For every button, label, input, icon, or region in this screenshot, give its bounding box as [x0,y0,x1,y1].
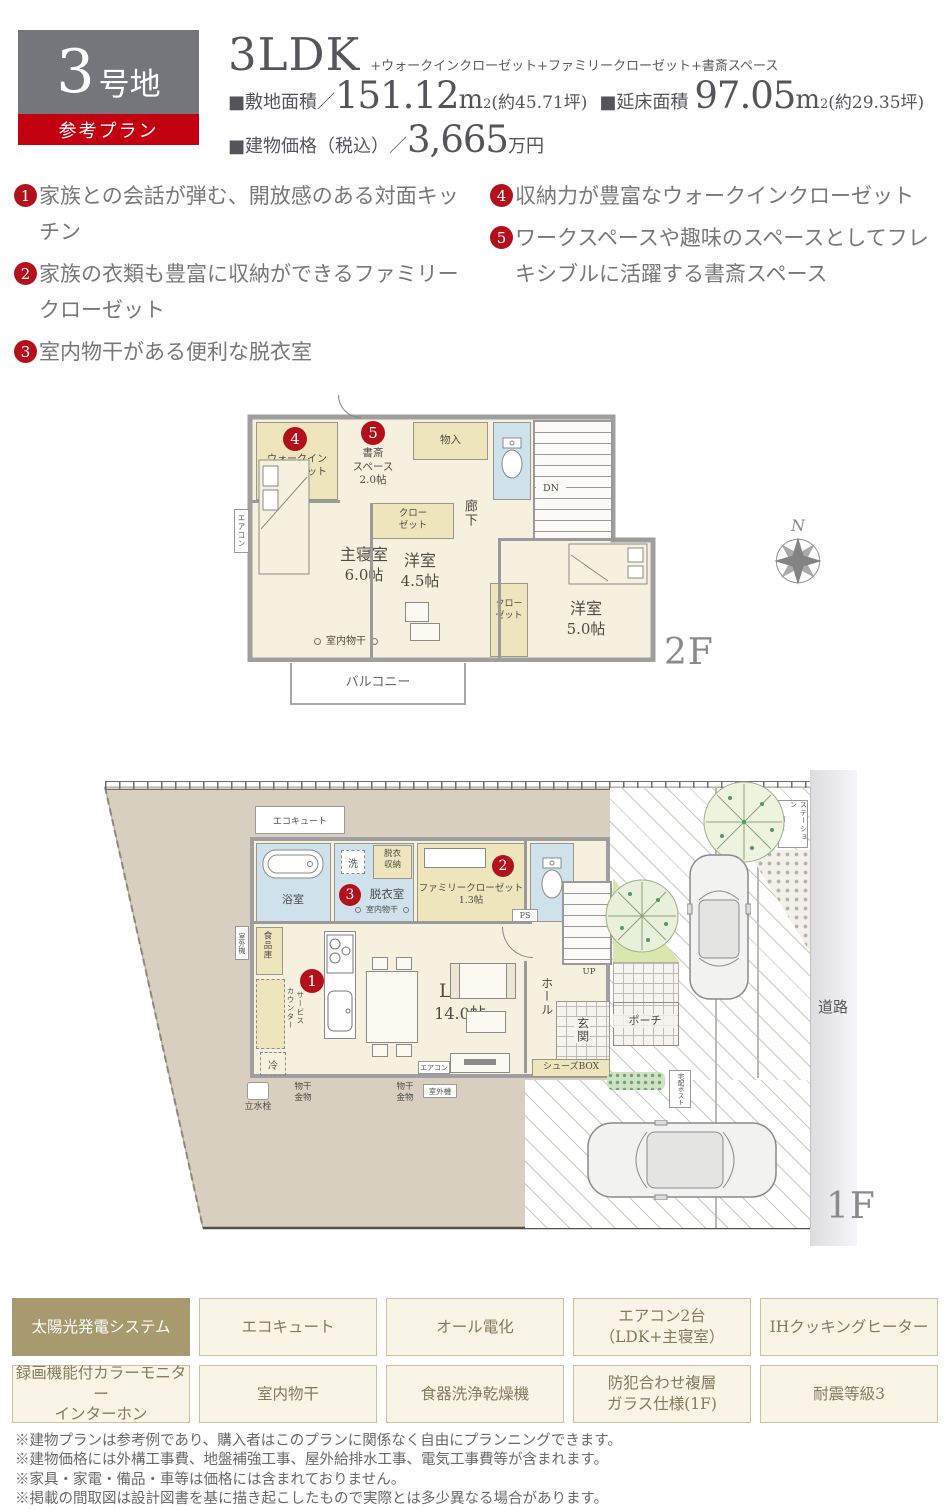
hang1-line2: 金物 [287,1093,319,1104]
family-closet-line1: ファミリークローゼット [418,883,524,895]
plan-badge-5: 5 [361,421,385,445]
entrance-label: 玄関 [574,1017,590,1043]
badge-indoor-drying: 室内物干 [199,1365,377,1423]
note-line-4: ※掲載の間取図は設計図書を基に描き起こしたもので実際とは多少異なる場合があります… [15,1490,935,1509]
feature-item-1: 1 家族との会話が弾む、開放感のある対面キッチン [14,178,476,250]
corridor-label: 廊下 [460,499,477,527]
badge-security-glass-line2: ガラス仕様(1F) [607,1394,717,1415]
closet-middle-label: クロー ゼット [372,508,454,533]
reference-plan-ribbon: 参考プラン [18,114,199,145]
house-1f: 浴室 洗 脱衣 収納 3 脱衣室 室内物干 2 ファミリークローゼット 1.3帖… [250,837,610,1078]
bed-icon-western50 [568,543,648,585]
hedge [607,1072,665,1090]
disclaimer-notes: ※建物プランは参考例であり、購入者はこのプランに関係なく自由にプランニングできま… [15,1432,935,1509]
floor-area-unit: m [795,85,820,115]
badge-solar-line1: 太陽光発電システム [31,1317,170,1338]
toilet-icon [499,437,525,481]
tap-text: 立水栓 [244,1102,271,1112]
plan-badge-3-number: 3 [346,887,355,903]
note-line-3: ※家具・家電・備品・車等は価格には含まれておりません。 [15,1471,935,1490]
stairs-up-label: UP [574,967,604,978]
ecocute-text: エコキュート [273,814,327,827]
closet-right-line2: ゼット [490,611,528,623]
porch-text: ポーチ [629,1014,662,1027]
hang1-line1: 物干 [287,1082,319,1093]
floor-area-unit-sup: 2 [820,97,828,112]
lot-number-suffix: 号地 [99,59,161,104]
feature-text-4: 収納力が豊富なウォークインクローゼット [515,178,914,214]
hall-text: ホール [540,977,554,1016]
plan-badge-2: 2 [492,855,514,877]
land-area-unit-sup: 2 [483,97,491,112]
sink-icon [326,989,354,1033]
badge-solar: 太陽光発電システム [12,1298,190,1356]
western45-name: 洋室 [378,551,462,572]
hang2-line2: 金物 [389,1093,421,1104]
indoor-drying-1f: 室内物干 [346,905,418,915]
feature-text-1: 家族との会話が弾む、開放感のある対面キッチン [39,178,476,250]
western-room-50-label: 洋室 5.0帖 [538,599,634,639]
study-line1: 書斎 [342,447,404,461]
car-icon-bottom [585,1120,779,1200]
plan-badge-3: 3 [339,884,361,906]
tv-icon [464,1059,496,1065]
floor-label-1f: 1F [826,1186,876,1227]
door-arc [502,927,533,958]
chair-icon [396,957,412,970]
lot-number-box: 3 号地 [18,30,199,114]
undress-room-text: 脱衣室 [370,887,405,901]
feature-number-5: 5 [490,226,513,249]
ecocute-box: エコキュート [255,806,345,834]
stove-icon [326,934,354,974]
floor-area-label: ■延床面積 [599,88,688,114]
undress-storage-label: 脱衣 収納 [373,849,412,871]
fridge-text: 冷 [268,1057,278,1072]
chair-icon [396,1044,412,1057]
badge-interphone-line2: インターホン [54,1404,147,1425]
hang-hardware-2: 物干 金物 [389,1082,421,1104]
floor-1f-text: 1F [826,1186,876,1227]
family-closet-label: ファミリークローゼット 1.3帖 [418,883,524,908]
shoes-box-label: シューズBOX [532,1062,610,1074]
corridor-text: 廊下 [462,499,477,527]
aircon-1f-box: エアコン [418,1061,450,1074]
compass-north-label: N [770,516,826,535]
note-line-1: ※建物プランは参考例であり、購入者はこのプランに関係なく自由にプランニングできま… [15,1432,935,1451]
garbage-line2: ステーション [789,801,809,847]
indoor-drying-1f-text: 室内物干 [366,905,398,915]
floor-label-2f: 2F [664,632,714,673]
sofa-arm [450,963,460,999]
badge-all-electric-line1: オール電化 [436,1317,514,1338]
bathtub-icon [262,849,324,879]
closet-counter [424,848,486,868]
compass-rose-icon [772,535,824,587]
western45-size: 4.5帖 [378,572,462,592]
wall-line [254,921,532,924]
feature-number-4: 4 [490,184,513,207]
feature-number-1: 1 [14,184,37,207]
badge-aircon-line2: （LDK+主寝室） [600,1327,725,1348]
wall-line [498,540,501,658]
study-size: 2.0帖 [342,474,404,488]
reference-plan-label: 参考プラン [59,117,159,143]
badge-aircon-line1: エアコン2台 [618,1306,705,1327]
chair-icon [410,623,440,641]
hang-hardware-1: 物干 金物 [287,1082,319,1104]
delivery-post-text: 宅配ポスト [675,1073,685,1106]
indoor-drying-2f: 室内物干 [278,635,414,648]
badge-interphone-line1: 録画機能付カラーモニター [13,1363,189,1405]
plan-badge-4-number: 4 [290,430,300,448]
stairs-down-label: DN [536,483,566,495]
washer-box: 洗 [341,850,365,874]
hall-label: ホール [538,977,554,1016]
bed-icon-master [258,459,310,575]
badge-security-glass-line1: 防犯合わせ複層 [608,1373,717,1394]
badge-ecocute: エコキュート [199,1298,377,1356]
undress-storage-line2: 収納 [373,860,412,871]
tap-label: 立水栓 [235,1102,281,1114]
dn-text: DN [543,483,559,494]
feature-item-2: 2 家族の衣類も豊富に収納ができるファミリークローゼット [14,256,476,328]
price-value: 3,665 [407,118,508,161]
badge-ih-heater-line1: IHクッキングヒーター [770,1317,929,1338]
badge-seismic: 耐震等級3 [760,1365,938,1423]
feature-item-4: 4 収納力が豊富なウォークインクローゼット [490,178,942,214]
wall-line [370,503,373,658]
pantry-counter [256,979,285,1049]
pantry-label: 食品庫 [261,931,272,960]
car-icon-top [687,852,751,1002]
ps-box: PS [512,909,538,922]
ps-text: PS [520,911,531,920]
badge-security-glass: 防犯合わせ複層 ガラス仕様(1F) [573,1365,751,1423]
bathroom-text: 浴室 [282,893,304,906]
equipment-badges: 太陽光発電システム エコキュート オール電化 エアコン2台 （LDK+主寝室） … [12,1298,938,1423]
drying-hook-icon [355,907,361,913]
badge-indoor-drying-line1: 室内物干 [257,1384,319,1405]
land-area-value: 151.12 [335,74,458,117]
aircon-1f-text: エアコン [420,1063,448,1073]
undress-storage-line1: 脱衣 [373,849,412,860]
storage-label: 物入 [413,434,488,448]
badge-all-electric: オール電化 [386,1298,564,1356]
study-line2: スペース [342,461,404,475]
compass: N [770,516,826,596]
closet-middle-line1: クロー [372,508,454,520]
badge-dishwasher-line1: 食器洗浄乾燥機 [421,1384,530,1405]
outdoor-unit-bottom-text: 室外機 [429,1086,452,1097]
chair-icon [372,957,388,970]
plan-badge-4: 4 [283,427,307,451]
pantry-text: 食品庫 [262,931,272,960]
lot-number: 3 [56,42,94,102]
plan-badge-2-number: 2 [499,858,508,874]
western-room-45-label: 洋室 4.5帖 [378,551,462,591]
coffee-table-icon [466,1011,506,1033]
land-area-label: ■敷地面積／ [228,88,335,114]
feature-item-5: 5 ワークスペースや趣味のスペースとしてフレキシブルに活躍する書斎スペース [490,220,942,292]
feature-item-3: 3 室内物干がある便利な脱衣室 [14,334,476,370]
washer-text: 洗 [348,855,358,870]
features-left-column: 1 家族との会話が弾む、開放感のある対面キッチン 2 家族の衣類も豊富に収納がで… [14,178,476,377]
floor-area-tsubo: (約29.35坪) [828,88,924,113]
plan-badge-1-number: 1 [307,972,317,990]
toilet-icon [539,857,565,901]
drying-hook-icon [403,907,409,913]
desk-icon [405,602,429,622]
outdoor-unit-left-text: 室外機 [237,933,247,954]
shoes-box-text: シューズBOX [543,1062,599,1072]
aircon-2f-box: エアコン [234,509,249,553]
approach-tiles [613,962,679,1004]
price-label: ■建物価格（税込）／ [228,132,407,158]
badge-ecocute-line1: エコキュート [241,1317,334,1338]
bathroom-label: 浴室 [266,893,320,907]
feature-number-3: 3 [14,340,37,363]
badge-interphone: 録画機能付カラーモニター インターホン [12,1365,190,1423]
plan-badge-1: 1 [300,969,324,993]
floor-2f-text: 2F [664,632,714,673]
area-line: ■敷地面積／ 151.12 m2 (約45.71坪) ■延床面積 97.05 m… [228,74,924,117]
balcony: バルコニー [290,663,466,705]
feature-number-2: 2 [14,262,37,285]
sofa-arm [506,963,516,999]
tree-icon [602,876,682,956]
feature-text-2: 家族の衣類も豊富に収納ができるファミリークローゼット [39,256,476,328]
badge-ih-heater: IHクッキングヒーター [760,1298,938,1356]
western50-name: 洋室 [538,599,634,620]
chair-icon [372,1044,388,1057]
western50-size: 5.0帖 [538,620,634,640]
feature-text-5: ワークスペースや趣味のスペースとしてフレキシブルに活躍する書斎スペース [515,220,942,292]
storage-text: 物入 [440,434,461,446]
aircon-2f-text: エアコン [236,514,247,548]
feature-text-3: 室内物干がある便利な脱衣室 [39,334,312,370]
price-unit: 万円 [508,132,544,158]
family-closet-size: 1.3帖 [418,895,524,907]
floor-area-value: 97.05 [694,74,795,117]
outdoor-unit-bottom-box: 室外機 [423,1084,457,1098]
outdoor-unit-left-box: 室外機 [235,926,249,960]
site-plan-1f: 道路 ゴミ ステーション エコキュート [97,770,860,1290]
price-line: ■建物価格（税込）／ 3,665 万円 [228,118,544,161]
plan-type-suffix: +ウォークインクローゼット+ファミリークローゼット+書斎スペース [370,55,778,74]
closet-right-label: クロー ゼット [490,599,528,622]
badge-seismic-line1: 耐震等級3 [813,1384,885,1405]
floor-plan-2f: 4 ウォークイン クローゼット 2.0帖 5 書斎 スペース 2.0帖 物入 D… [250,417,653,660]
balcony-text: バルコニー [346,675,411,690]
dining-table-icon [366,971,418,1043]
porch-label: ポーチ [613,1014,677,1028]
undress-room-label: 脱衣室 [362,887,412,902]
stairs-2f [533,420,613,540]
delivery-post-box: 宅配ポスト [669,1070,691,1108]
entrance-text: 玄関 [576,1017,590,1043]
wall-line [524,961,527,1073]
up-text: UP [583,967,596,977]
service-counter-line2: カウンター [285,975,295,1041]
hang2-line1: 物干 [389,1082,421,1093]
land-area-unit: m [458,85,483,115]
closet-right-line1: クロー [490,599,528,611]
land-area-tsubo: (約45.71坪) [491,88,587,113]
fridge-box: 冷 [260,1052,286,1076]
study-space-label: 書斎 スペース 2.0帖 [342,447,404,488]
features-right-column: 4 収納力が豊富なウォークインクローゼット 5 ワークスペースや趣味のスペースと… [490,178,942,298]
closet-middle-line2: ゼット [372,520,454,532]
balcony-label: バルコニー [292,675,464,692]
tap-icon [247,1082,269,1100]
badge-dishwasher: 食器洗浄乾燥機 [386,1365,564,1423]
plan-badge-5-number: 5 [368,424,378,442]
note-line-2: ※建物価格には外構工事費、地盤補強工事、屋外給排水工事、電気工事費等が含まれます… [15,1451,935,1470]
drying-hook-icon [314,638,321,645]
badge-aircon: エアコン2台 （LDK+主寝室） [573,1298,751,1356]
wall-line [498,538,651,541]
indoor-drying-2f-text: 室内物干 [326,635,366,648]
